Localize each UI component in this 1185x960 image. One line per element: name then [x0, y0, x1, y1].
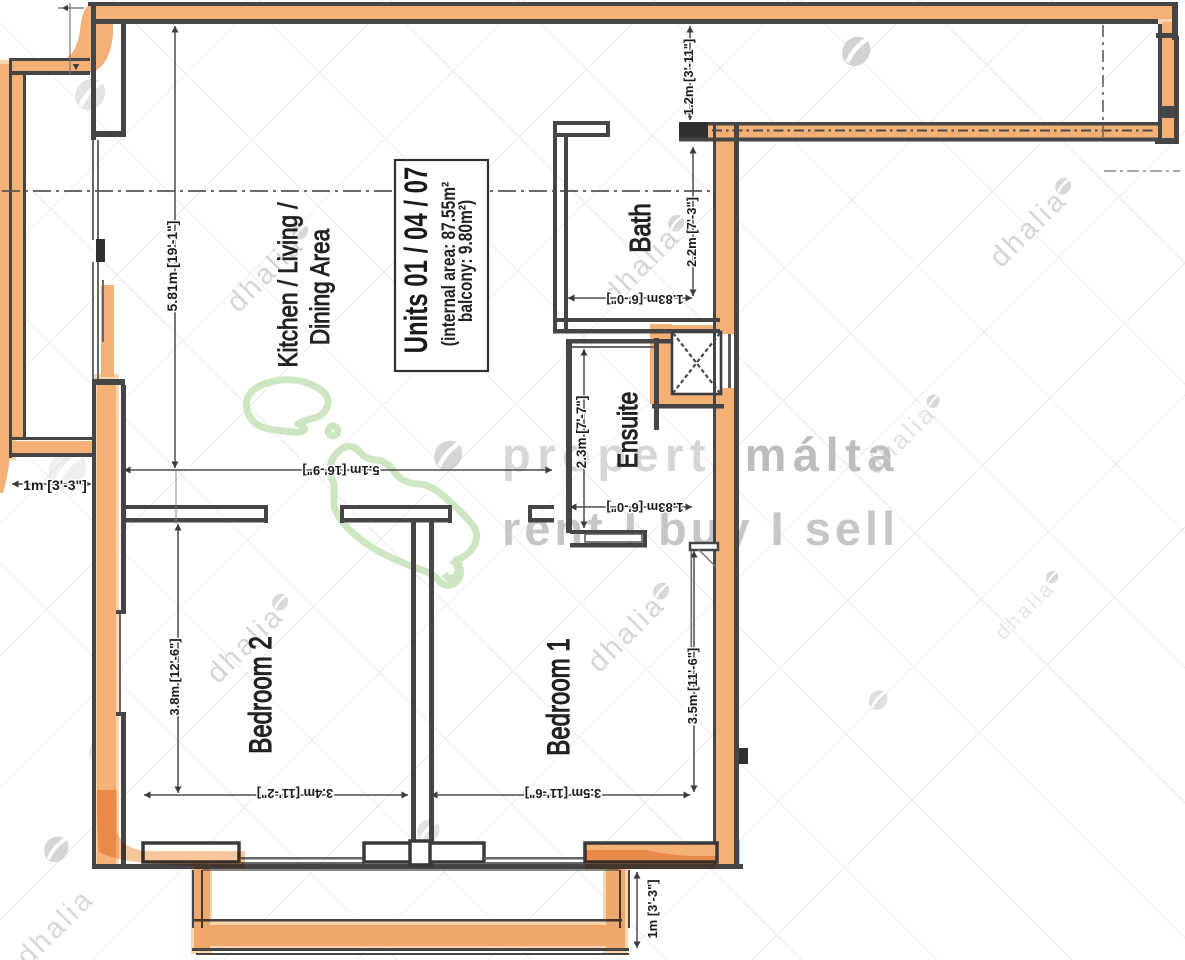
svg-text:2.2m [7'-3"]: 2.2m [7'-3"]: [684, 197, 699, 267]
svg-text:1m [3'-3"]: 1m [3'-3"]: [23, 477, 87, 493]
svg-text:1.83m [6'-0"]: 1.83m [6'-0"]: [606, 500, 683, 515]
svg-text:5.81m [19'-1"]: 5.81m [19'-1"]: [164, 221, 180, 312]
svg-text:Units 01 / 04 / 07: Units 01 / 04 / 07: [399, 167, 435, 354]
svg-text:Dining Area: Dining Area: [306, 229, 335, 345]
svg-text:Kitchen / Living /: Kitchen / Living /: [274, 202, 303, 367]
svg-text:1.83m [6'-0"]: 1.83m [6'-0"]: [606, 292, 683, 307]
svg-text:Bedroom 2: Bedroom 2: [243, 636, 278, 753]
svg-text:1.2m [3'-11"]: 1.2m [3'-11"]: [681, 39, 696, 115]
svg-text:Bedroom 1: Bedroom 1: [541, 638, 576, 755]
svg-text:2.3m [7'-7"]: 2.3m [7'-7"]: [574, 396, 589, 469]
svg-text:Bath: Bath: [624, 203, 657, 252]
svg-text:Ensuite: Ensuite: [613, 392, 643, 469]
svg-text:propertymálta: propertymálta: [502, 428, 900, 481]
svg-text:balcony: 9.80m²): balcony: 9.80m²): [454, 200, 476, 322]
svg-text:5.1m [16'-9"]: 5.1m [16'-9"]: [302, 463, 379, 478]
svg-text:1m [3'-3"]: 1m [3'-3"]: [645, 879, 660, 938]
svg-text:3.8m [12'-6"]: 3.8m [12'-6"]: [167, 638, 182, 715]
svg-text:3.5m [11'-6"]: 3.5m [11'-6"]: [525, 786, 601, 801]
svg-text:3.5m [11'-6"]: 3.5m [11'-6"]: [685, 648, 700, 724]
svg-text:3.4m [11'-2"]: 3.4m [11'-2"]: [257, 786, 333, 801]
